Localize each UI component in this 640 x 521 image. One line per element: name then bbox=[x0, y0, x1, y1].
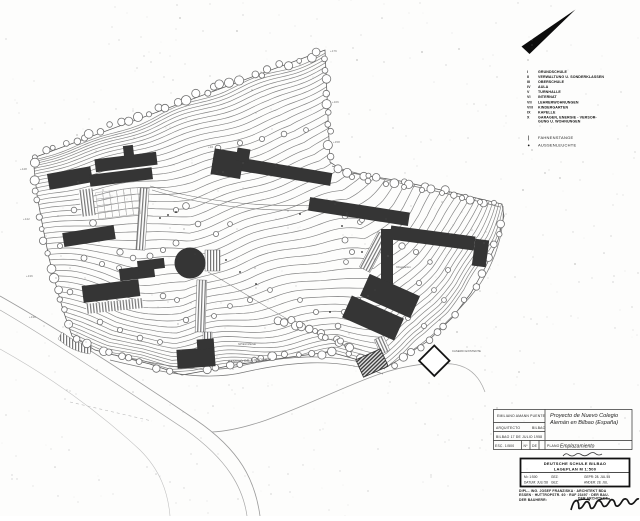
svg-text:ESC. 1/500: ESC. 1/500 bbox=[495, 444, 514, 448]
svg-text:BILBAO: BILBAO bbox=[532, 426, 546, 430]
svg-text:+166: +166 bbox=[332, 100, 339, 104]
svg-text:I: I bbox=[527, 70, 528, 74]
svg-text:CASERIO EXISTENTE: CASERIO EXISTENTE bbox=[452, 349, 481, 353]
svg-text:GEZ:: GEZ: bbox=[551, 475, 559, 479]
svg-text:+136: +136 bbox=[26, 274, 33, 278]
svg-text:●: ● bbox=[528, 143, 531, 148]
svg-text:+148: +148 bbox=[20, 167, 27, 171]
svg-text:EMILIANO AMANN PUENTE: EMILIANO AMANN PUENTE bbox=[497, 414, 546, 418]
svg-text:+142: +142 bbox=[23, 217, 30, 221]
svg-text:FAHNENSTANGE: FAHNENSTANGE bbox=[538, 135, 573, 140]
svg-text:OBERSCHULE: OBERSCHULE bbox=[538, 80, 565, 84]
svg-text:+16: +16 bbox=[208, 145, 213, 149]
svg-text:+158: +158 bbox=[333, 140, 340, 144]
svg-text:KAPELLE: KAPELLE bbox=[538, 110, 556, 114]
svg-text:Emplazamiento: Emplazamiento bbox=[560, 444, 595, 450]
svg-text:IX: IX bbox=[527, 110, 531, 114]
svg-text:BILBAO 17 DE JULIO 1958: BILBAO 17 DE JULIO 1958 bbox=[496, 435, 542, 439]
svg-text:GEZ:: GEZ: bbox=[551, 481, 559, 485]
svg-text:PLANO: PLANO bbox=[547, 444, 560, 448]
svg-text:GRUNDSCHULE: GRUNDSCHULE bbox=[538, 70, 568, 74]
svg-text:KINDERGARTEN: KINDERGARTEN bbox=[538, 105, 568, 109]
svg-text:AUSSENLEUCHTE: AUSSENLEUCHTE bbox=[538, 143, 576, 148]
svg-text:DER BAUHERR:: DER BAUHERR: bbox=[519, 498, 547, 502]
svg-text:Proyecto de Nuevo Colegio: Proyecto de Nuevo Colegio bbox=[550, 413, 618, 419]
svg-text:+176: +176 bbox=[330, 49, 337, 53]
svg-text:ARQUITECTO: ARQUITECTO bbox=[496, 426, 520, 430]
svg-text:M= 1:500: M= 1:500 bbox=[524, 475, 538, 479]
svg-text:INTERNAT: INTERNAT bbox=[538, 95, 557, 99]
svg-text:AULA: AULA bbox=[538, 85, 549, 89]
svg-text:VERWALTUNG U. SONDERKLASSEN: VERWALTUNG U. SONDERKLASSEN bbox=[538, 75, 604, 79]
svg-text:Obstgarten: Obstgarten bbox=[396, 265, 411, 269]
svg-text:LAGEPLAN M 1:500: LAGEPLAN M 1:500 bbox=[554, 467, 597, 472]
svg-text:Alemán en Bilbao (España): Alemán en Bilbao (España) bbox=[549, 420, 618, 426]
svg-text:ANDER: 28. JUL: ANDER: 28. JUL bbox=[584, 481, 608, 485]
svg-text:DATUM: JULI 58: DATUM: JULI 58 bbox=[524, 481, 548, 485]
svg-text:GEPR: 28. JUL 55: GEPR: 28. JUL 55 bbox=[584, 475, 610, 479]
svg-text:TURNHALLE: TURNHALLE bbox=[538, 90, 561, 94]
svg-text:VI: VI bbox=[527, 95, 531, 99]
svg-text:DE: DE bbox=[532, 444, 538, 448]
svg-text:+130: +130 bbox=[29, 315, 36, 319]
svg-text:VII: VII bbox=[527, 100, 532, 104]
svg-text:LEHRERWOHNUNGEN: LEHRERWOHNUNGEN bbox=[538, 100, 579, 104]
svg-text:II: II bbox=[527, 75, 529, 79]
svg-text:III: III bbox=[527, 80, 530, 84]
svg-text:DEUTSCHE SCHULE BILBAO: DEUTSCHE SCHULE BILBAO bbox=[544, 461, 607, 466]
svg-text:Nº: Nº bbox=[524, 444, 529, 448]
svg-text:SPIELWIESE: SPIELWIESE bbox=[238, 342, 257, 346]
svg-text:IV: IV bbox=[527, 85, 531, 89]
svg-text:GUNG U. WOHNUNGEN: GUNG U. WOHNUNGEN bbox=[538, 120, 581, 124]
svg-text:VIII: VIII bbox=[527, 105, 533, 109]
